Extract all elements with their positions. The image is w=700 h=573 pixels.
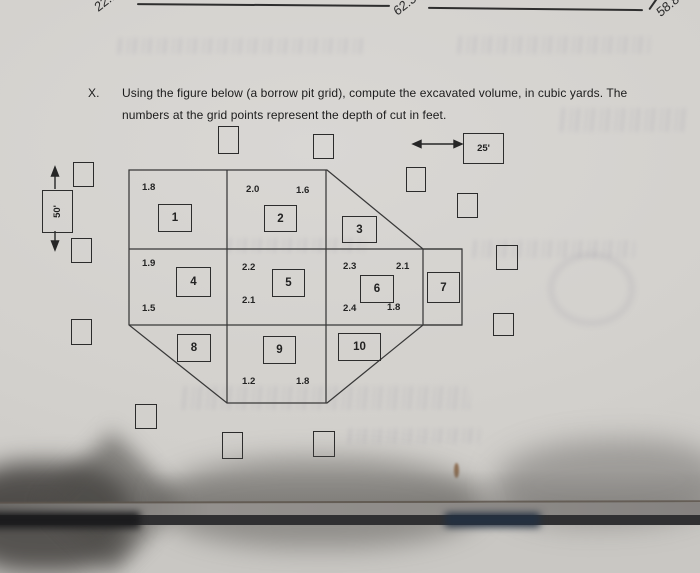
vertical-scale-label: 50' [52,205,63,218]
answer-square [71,238,92,263]
answer-square [406,167,426,192]
answer-square [73,162,94,187]
answer-square [71,319,92,345]
horizontal-scale-box: 25' [463,133,504,164]
answer-square [493,313,514,336]
answer-square [496,245,518,270]
depth-value: 1.8 [142,182,155,193]
cell-box-5: 5 [272,269,305,297]
worksheet-photo: 22.1 62.3 58.8 X. Using the figure below… [0,0,700,525]
cell-box-2: 2 [264,205,297,232]
answer-square [218,126,239,154]
depth-value: 1.9 [142,258,155,269]
depth-value: 2.1 [396,261,409,272]
cell-box-4: 4 [176,267,211,297]
arrow-up-head [52,167,59,176]
answer-square [135,404,157,429]
answer-square [457,193,478,218]
arrow-down-head [52,241,59,250]
arrow-right-head [454,141,462,148]
depth-value: 2.0 [246,184,259,195]
depth-value: 2.1 [242,295,255,306]
answer-square [313,431,335,457]
cell-box-3: 3 [342,216,377,243]
depth-value: 1.6 [296,185,309,196]
depth-value: 1.8 [387,302,400,313]
cell-box-10: 10 [338,333,381,361]
depth-value: 1.8 [296,376,309,387]
arrow-left-head [413,141,421,148]
cell-box-8: 8 [177,334,211,362]
depth-value: 2.2 [242,262,255,273]
answer-square [222,432,243,459]
depth-value: 2.4 [343,303,356,314]
answer-square [313,134,334,159]
horizontal-scale-label: 25' [477,143,490,154]
depth-value: 1.5 [142,303,155,314]
cell-box-1: 1 [158,204,192,232]
cell-box-7: 7 [427,272,460,303]
cell-box-6: 6 [360,275,394,303]
cell-box-9: 9 [263,336,296,364]
vertical-scale-box: 50' [42,190,73,233]
depth-value: 1.2 [242,376,255,387]
depth-value: 2.3 [343,261,356,272]
